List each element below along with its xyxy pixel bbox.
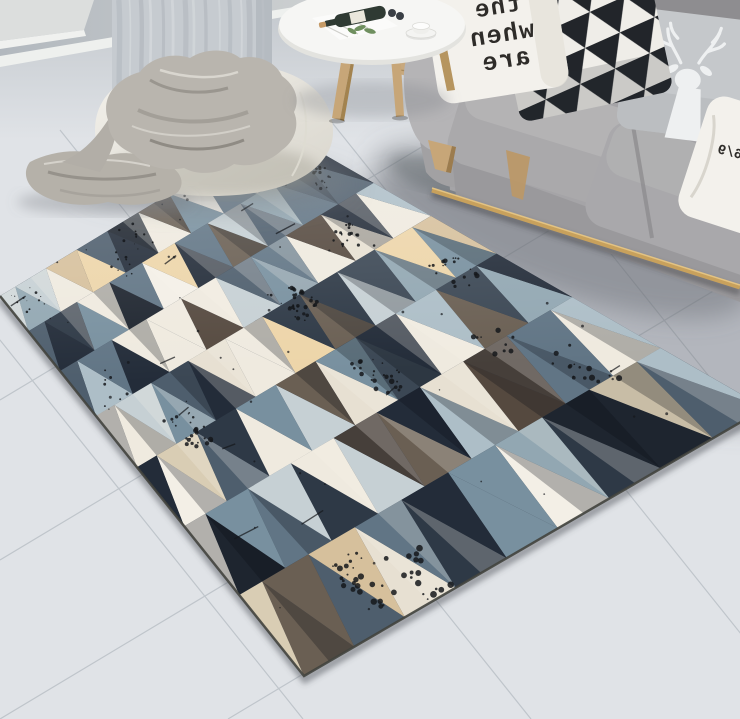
sunglasses [388,9,396,17]
cup-rim [413,23,430,30]
table-foot-shadow [392,116,408,121]
scene: the when are 6/9 [0,0,740,719]
table-foot-shadow [329,119,345,124]
living-room-rug-photo: the when are 6/9 [0,0,740,719]
sunglasses [396,12,404,20]
table-shadow [294,82,450,118]
